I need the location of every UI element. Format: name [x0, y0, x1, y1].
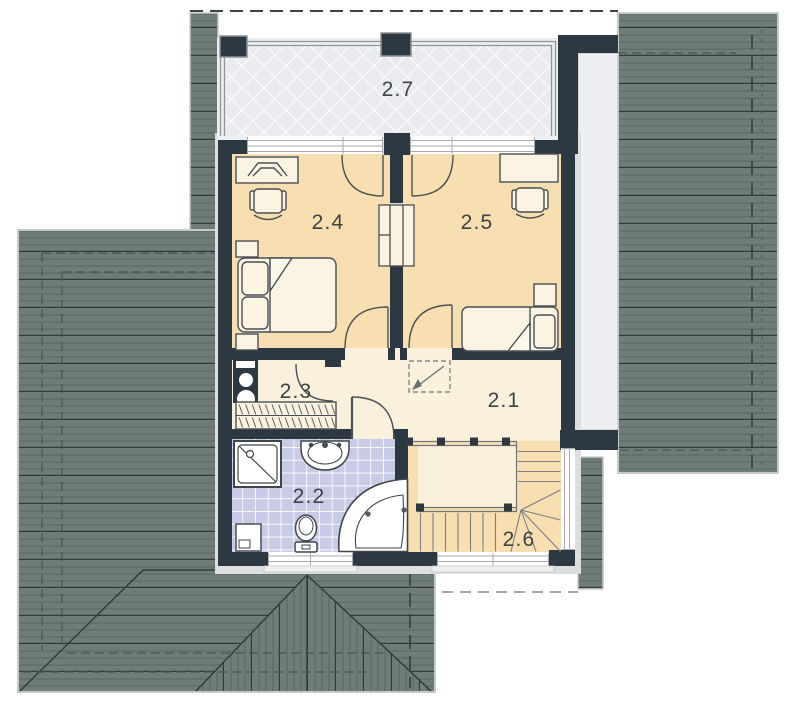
- room-label-2-4: 2.4: [312, 211, 345, 235]
- balcony-pillar: [220, 36, 247, 57]
- floor-plan-canvas: [0, 0, 795, 712]
- desk-icon: [236, 157, 298, 183]
- nightstand-icon: [534, 284, 556, 306]
- room-label-2-2: 2.2: [293, 485, 326, 509]
- double-bed-icon: [238, 258, 336, 332]
- window-right-wall: [561, 448, 575, 550]
- wardrobe-icon: [236, 402, 336, 429]
- radiator-icon: [236, 524, 261, 551]
- wardrobe-cabinet-icon: [379, 205, 414, 266]
- room-label-2-1: 2.1: [488, 389, 521, 413]
- roof-right: [618, 13, 778, 473]
- roof-right-lower-strip: [578, 457, 603, 589]
- window-bathroom: [264, 552, 357, 572]
- nightstand-icon: [236, 334, 258, 350]
- room-label-2-6: 2.6: [503, 528, 536, 552]
- balcony-door-window-right: [410, 136, 535, 154]
- floor-plan: 2.7 2.4 2.5 2.3 2.1 2.2 2.6: [0, 0, 795, 712]
- room-label-2-5: 2.5: [461, 211, 494, 235]
- room-label-2-7: 2.7: [382, 78, 415, 102]
- shower-icon: [234, 441, 281, 487]
- single-bed-icon: [462, 307, 558, 351]
- stair-well: [418, 446, 517, 508]
- balcony-door-window-left: [247, 136, 383, 154]
- roof-top-left-strip: [190, 13, 218, 231]
- toilet-icon: [295, 515, 317, 552]
- balcony-pillar: [381, 33, 411, 56]
- lower-roof-band: [578, 53, 618, 430]
- desk-icon: [500, 154, 558, 182]
- room-label-2-3: 2.3: [280, 380, 313, 404]
- nightstand-icon: [236, 241, 258, 257]
- window-staircase: [432, 552, 554, 572]
